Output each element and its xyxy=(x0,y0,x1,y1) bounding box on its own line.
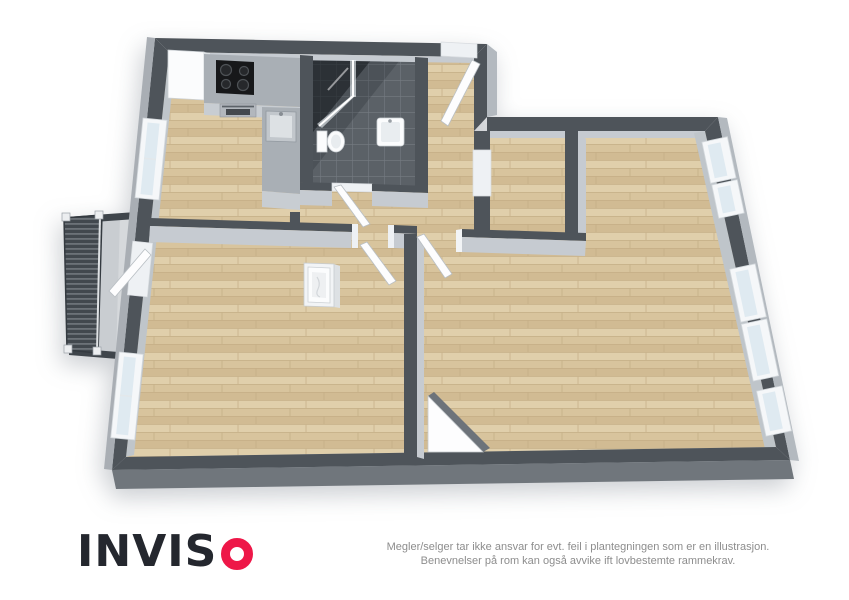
entry-door-threshold xyxy=(441,42,477,58)
cooktop xyxy=(216,60,254,95)
kitchen-sink xyxy=(266,111,296,142)
wall-bedroom-living-face xyxy=(417,238,424,459)
small-room-door-threshold xyxy=(473,150,491,196)
tall-cabinet xyxy=(168,50,204,100)
wall-bathroom-south-a-face xyxy=(300,190,332,206)
white-floor-unit xyxy=(304,263,340,308)
disclaimer: Megler/selger tar ikke ansvar for evt. f… xyxy=(368,540,788,569)
wall-bedroom-living xyxy=(404,234,417,461)
bathroom-sink xyxy=(377,118,404,146)
bedroom-door-cap-east xyxy=(388,225,394,248)
outer-wall-top-right-inner-face xyxy=(487,131,705,138)
wall-kitchen-stub xyxy=(290,212,300,226)
wall-door-stub xyxy=(394,225,417,234)
bedroom-door-cap-west xyxy=(352,224,358,248)
wall-bathroom-south-b-face xyxy=(372,191,428,208)
balcony-railing xyxy=(64,215,102,353)
wall-kitchen-bathroom xyxy=(300,55,313,184)
disclaimer-line-1: Megler/selger tar ikke ansvar for evt. f… xyxy=(368,540,788,554)
kitchen-faucet xyxy=(279,112,283,116)
wall-bathroom-entry xyxy=(415,57,428,189)
hall-living-door-cap xyxy=(456,229,462,252)
inviso-logo-text: INVIS xyxy=(77,530,217,574)
wall-small-room-east-face xyxy=(578,134,586,238)
wall-bathroom-south-a xyxy=(300,182,332,191)
floor-plan-page: INVIS Megler/selger tar ikke ansvar for … xyxy=(0,0,849,600)
kitchen-peninsula-front xyxy=(262,191,300,210)
outer-wall-step-face xyxy=(487,44,497,117)
inviso-logo-o-mark xyxy=(221,538,253,570)
oven-window xyxy=(226,109,250,115)
bathroom-faucet xyxy=(388,119,392,123)
disclaimer-line-2: Benevnelser på rom kan også avvike ift l… xyxy=(368,554,788,568)
toilet xyxy=(317,131,345,152)
floor-plan-3d xyxy=(0,0,849,600)
wall-small-room-east xyxy=(565,131,578,233)
inviso-logo: INVIS xyxy=(77,530,253,574)
outer-wall-top-right xyxy=(487,117,718,131)
